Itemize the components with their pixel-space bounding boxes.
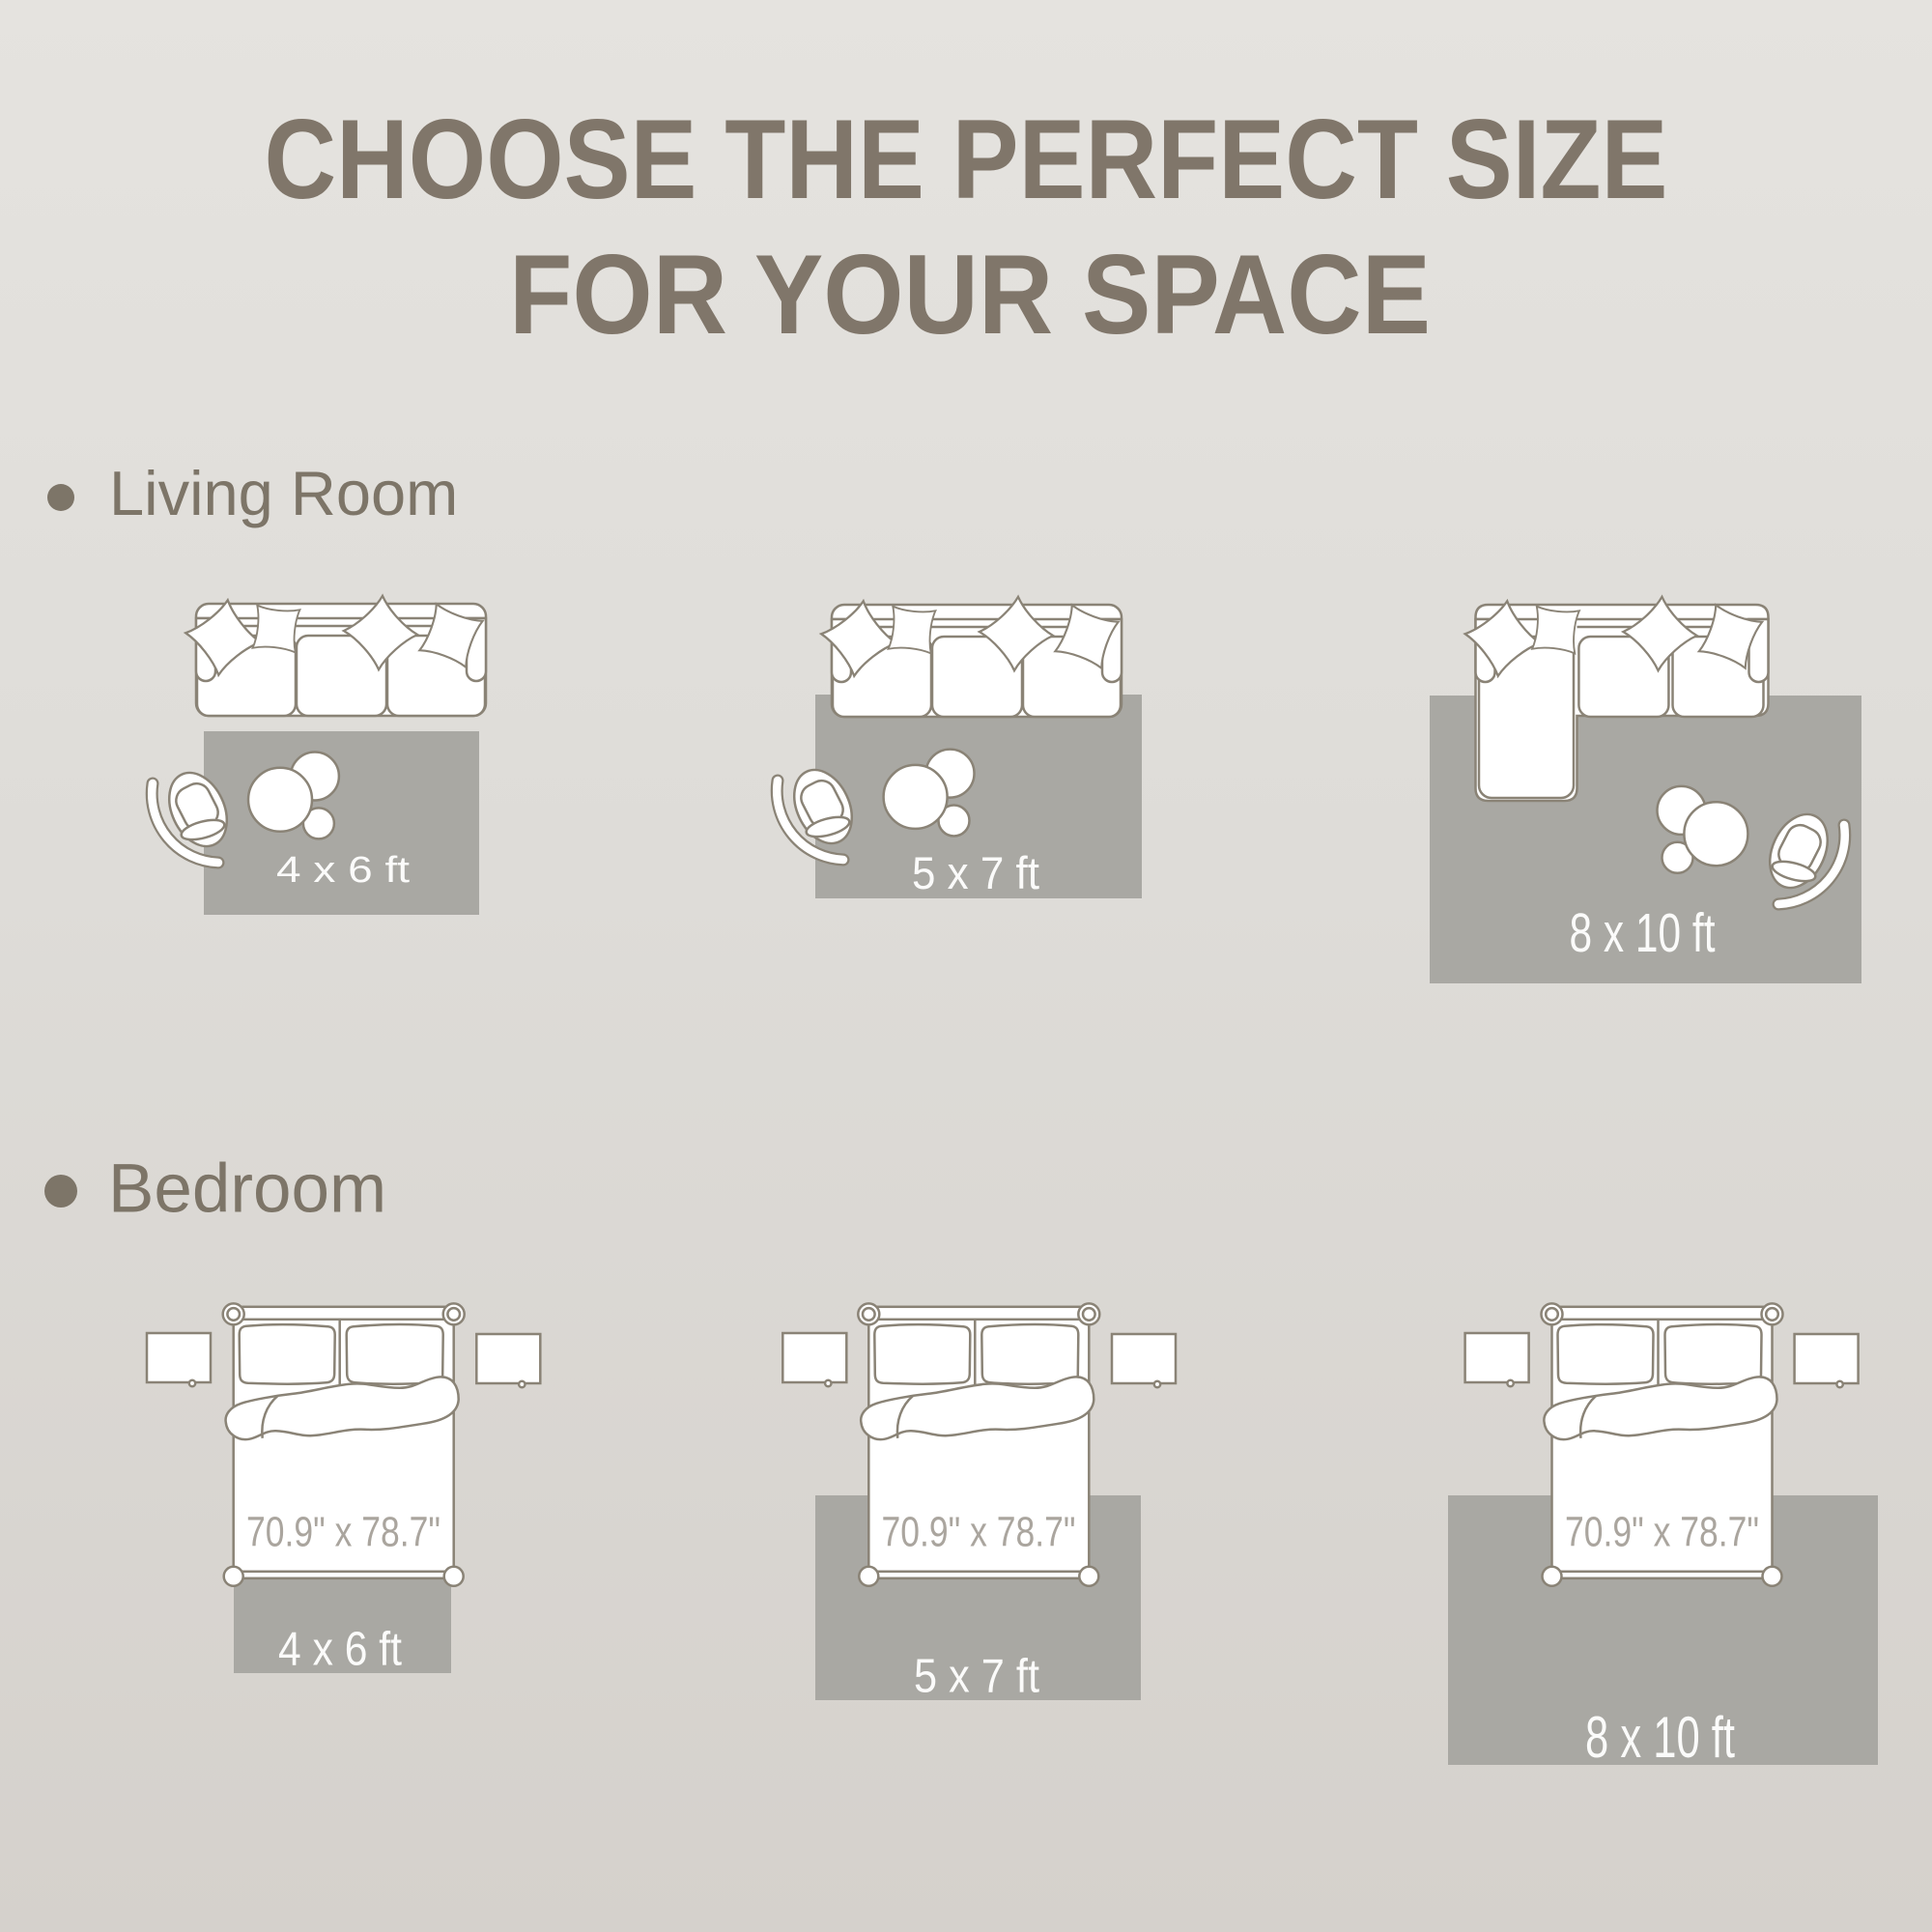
svg-text:FOR YOUR SPACE: FOR YOUR SPACE (509, 231, 1431, 357)
svg-text:Bedroom: Bedroom (108, 1151, 386, 1228)
svg-text:8 x 10 ft: 8 x 10 ft (1570, 902, 1716, 964)
svg-text:70.9" x 78.7": 70.9" x 78.7" (882, 1509, 1076, 1556)
svg-text:5 x 7 ft: 5 x 7 ft (914, 1651, 1039, 1703)
svg-text:4 x 6 ft: 4 x 6 ft (276, 850, 411, 891)
svg-text:70.9" x 78.7": 70.9" x 78.7" (246, 1509, 440, 1556)
svg-text:CHOOSE THE PERFECT SIZE: CHOOSE THE PERFECT SIZE (265, 96, 1668, 222)
svg-text:5 x 7 ft: 5 x 7 ft (912, 847, 1039, 898)
svg-text:4 x 6 ft: 4 x 6 ft (278, 1624, 402, 1676)
svg-text:8 x 10 ft: 8 x 10 ft (1585, 1705, 1735, 1770)
svg-text:Living Room: Living Room (109, 458, 458, 528)
svg-text:70.9" x 78.7": 70.9" x 78.7" (1565, 1509, 1759, 1556)
